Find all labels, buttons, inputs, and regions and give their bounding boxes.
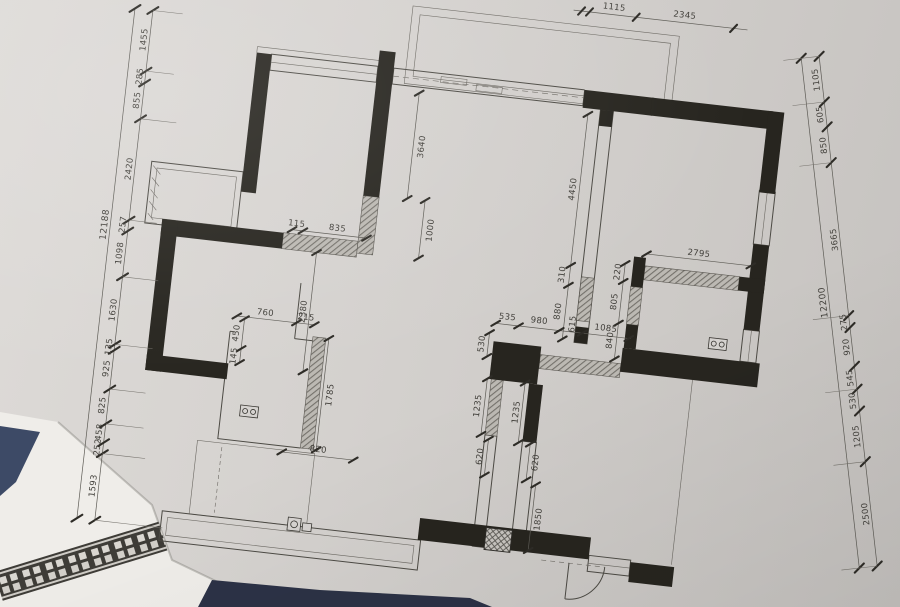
small-box-symbol (302, 523, 312, 532)
window-hatch-wall (626, 286, 642, 325)
wall-segment (631, 257, 646, 288)
navy-table-sliver (198, 580, 492, 607)
dim-label: 135 (104, 338, 116, 356)
dim-label: 535 (498, 312, 516, 324)
dim-label: 1115 (602, 1, 626, 14)
bottom-step-window-midline (588, 563, 630, 568)
dim-label: 620 (475, 447, 487, 465)
overall-dim-label: 12200 (817, 286, 830, 318)
dim-label: 450 (231, 324, 243, 342)
floor-drain-symbol (287, 517, 301, 531)
wall-segment (489, 341, 541, 384)
dim-label: 980 (530, 315, 548, 327)
dim-label: 275 (838, 313, 850, 331)
wall-segment (145, 354, 228, 379)
wall-segment (738, 277, 765, 294)
door-swing-arc (565, 563, 605, 603)
dim-label: 760 (256, 307, 274, 319)
dimensions (71, 0, 781, 595)
dim-label: 615 (567, 315, 579, 333)
floorplan-svg: 1455 285 855 2420 257 1098 1630 135 925 … (0, 0, 900, 607)
dim-label: 805 (609, 293, 621, 311)
dim-label: 835 (328, 223, 346, 235)
wall-segment (620, 348, 760, 387)
window-hatch-wall (357, 196, 379, 255)
kitchen-right-line (671, 380, 692, 565)
wall-segment (145, 219, 178, 372)
dim-label: 1785 (324, 383, 337, 407)
dim-label: 2345 (673, 9, 697, 22)
dim-label: 545 (845, 369, 857, 387)
dim-label: 605 (815, 105, 827, 123)
window-hatch-wall (485, 377, 503, 436)
dim-label: 825 (97, 396, 109, 414)
dim-label: 530 (476, 335, 488, 353)
outer-boundary-line (257, 47, 387, 68)
photographed-floorplan: 1455 285 855 2420 257 1098 1630 135 925 … (0, 0, 900, 607)
dim-label: 4450 (567, 177, 580, 201)
right-chain-group: 1105 605 850 3665 275 920 545 530 1205 2… (783, 52, 883, 574)
dim-label: 925 (101, 360, 113, 378)
dim-label: 530 (847, 392, 859, 410)
hatched-walls (260, 187, 744, 495)
terrace-inner-line (413, 15, 670, 105)
window-hatch-wall (282, 233, 358, 257)
window-hatch-wall (576, 277, 594, 322)
dim-label: 880 (552, 302, 564, 320)
balcony-inner-line (151, 168, 236, 227)
dim-label: 855 (132, 91, 144, 109)
dim-label: 1850 (532, 508, 545, 532)
bedroom3-window-midline (761, 191, 767, 245)
study-window-midline (748, 330, 752, 362)
right-chain-labels: 1105 605 850 3665 275 920 545 530 1205 2… (793, 68, 873, 528)
dim-label: 820 (309, 444, 327, 456)
window-hatch-wall (539, 355, 621, 378)
plan-group: 1455 285 855 2420 257 1098 1630 135 925 … (64, 0, 798, 607)
wall-segment (628, 562, 674, 587)
dim-label: 145 (228, 347, 240, 365)
dim-label: 620 (530, 454, 542, 472)
dim-label: 1000 (424, 218, 437, 242)
dim-label: 1235 (472, 394, 485, 418)
window-hatch-wall (300, 337, 326, 450)
wardrobe-dashed-line (214, 447, 221, 513)
right-chain-line (801, 56, 877, 568)
right-chain-ticks (796, 52, 883, 573)
dim-label: 257 (118, 215, 130, 233)
dim-label: 285 (134, 67, 146, 85)
dim-label: 220 (612, 263, 624, 281)
dim-label: 215 (297, 312, 315, 324)
solid-walls (127, 28, 790, 594)
wall-segment (650, 98, 773, 130)
window-hatch-wall (644, 266, 740, 291)
dim-label: 3640 (416, 135, 429, 159)
dim-label: 1085 (594, 323, 618, 336)
dim-label: 310 (557, 266, 569, 284)
wall-segment (363, 50, 395, 197)
thin-walls-windows (108, 0, 792, 607)
overall-dim-label: 12188 (99, 208, 112, 240)
wall-segment (241, 53, 272, 194)
dim-label: 252 (92, 438, 104, 456)
interior-dim-labels: 3640 1000 115 835 2380 4450 310 880 2795… (214, 116, 720, 546)
wall-segment (599, 110, 614, 127)
dim-label: 115 (288, 218, 306, 230)
dim-label: 850 (818, 136, 830, 154)
left-chain-labels: 1455 285 855 2420 257 1098 1630 135 925 … (70, 26, 151, 498)
dim-label: 920 (841, 338, 853, 356)
wall-segment (522, 383, 542, 442)
flue-shaft-symbol (484, 528, 512, 553)
wall-segment (583, 90, 655, 116)
desk-scene (0, 412, 492, 607)
dim-label: 2795 (687, 248, 711, 261)
wall-segment (161, 219, 284, 249)
door-opening-dashes (541, 560, 605, 567)
